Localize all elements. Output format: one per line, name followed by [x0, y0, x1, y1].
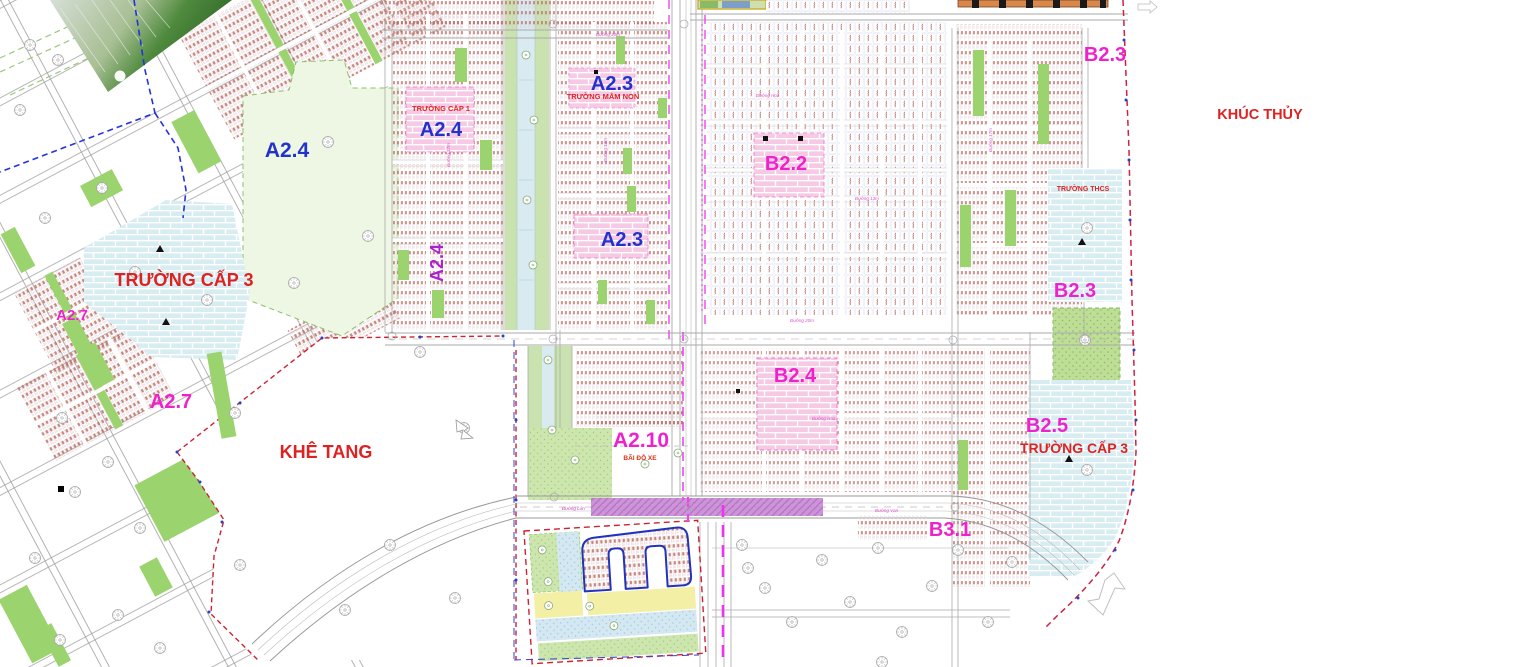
svg-text:B2.5: B2.5 [1026, 415, 1068, 437]
svg-text:A2.3: A2.3 [601, 229, 643, 251]
svg-text:Đường Hoa: Đường Hoa [812, 416, 836, 421]
svg-text:Đường Vạn: Đường Vạn [875, 508, 899, 513]
svg-text:Đường Hoa: Đường Hoa [756, 93, 780, 98]
svg-text:B2.4: B2.4 [774, 365, 817, 387]
svg-text:KHÚC THỦY: KHÚC THỦY [1217, 105, 1303, 123]
svg-text:A2.4: A2.4 [265, 139, 310, 162]
svg-text:Đường 13m: Đường 13m [855, 196, 879, 201]
svg-text:A2.4: A2.4 [420, 119, 463, 141]
svg-text:Đường Lớn: Đường Lớn [562, 506, 585, 511]
svg-text:TRƯỜNG CẤP 3: TRƯỜNG CẤP 3 [1020, 439, 1128, 456]
svg-text:A2.7: A2.7 [150, 391, 192, 413]
svg-text:A2.4: A2.4 [427, 244, 447, 282]
svg-text:B3.1: B3.1 [929, 519, 971, 541]
svg-text:Đường 13m: Đường 13m [603, 138, 608, 162]
svg-text:TRƯỜNG MẦM NON: TRƯỜNG MẦM NON [567, 91, 640, 101]
svg-text:TRƯỜNG CẤP 3: TRƯỜNG CẤP 3 [115, 269, 254, 290]
svg-text:KHÊ TANG: KHÊ TANG [280, 441, 373, 462]
svg-text:Đường 17m: Đường 17m [446, 143, 451, 167]
svg-text:B2.3: B2.3 [1084, 44, 1126, 66]
svg-text:B2.3: B2.3 [1054, 280, 1096, 302]
svg-text:Đường 17m: Đường 17m [988, 128, 993, 152]
svg-text:TRƯỜNG CẤP 1: TRƯỜNG CẤP 1 [412, 103, 470, 113]
svg-text:A2.7: A2.7 [56, 307, 88, 324]
svg-text:BÃI ĐỖ XE: BÃI ĐỖ XE [623, 453, 657, 462]
svg-text:Đường 20m: Đường 20m [790, 318, 814, 323]
svg-text:A2.10: A2.10 [613, 429, 669, 452]
svg-text:TRƯỜNG THCS: TRƯỜNG THCS [1057, 184, 1110, 193]
svg-text:Đường 20m: Đường 20m [596, 32, 620, 37]
svg-text:B2.2: B2.2 [765, 153, 807, 175]
